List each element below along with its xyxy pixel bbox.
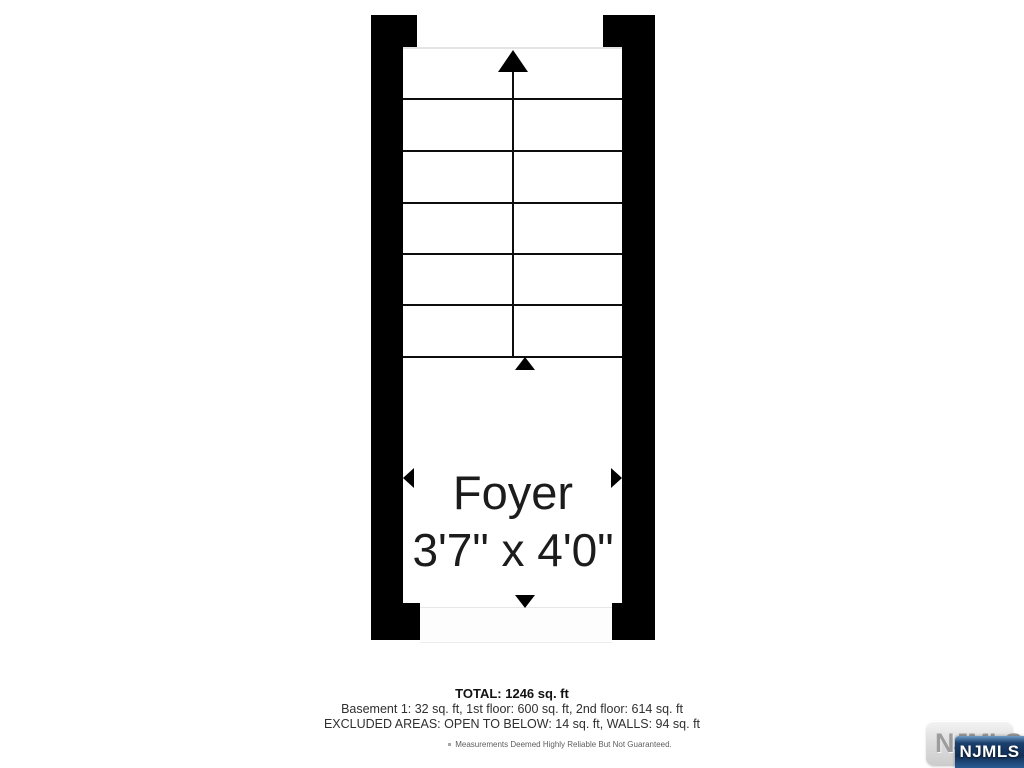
floor-breakdown-text: Basement 1: 32 sq. ft, 1st floor: 600 sq…: [0, 702, 1024, 716]
wall-stub-top-right: [603, 15, 655, 49]
disclaimer-label: Measurements Deemed Highly Reliable But …: [455, 740, 672, 749]
dimension-arrow-down-icon: [515, 595, 535, 608]
wall-stub-top-left: [371, 15, 417, 49]
disclaimer-mark-icon: [448, 743, 451, 746]
disclaimer-text: Measurements Deemed Highly Reliable But …: [96, 740, 1024, 749]
dimension-arrow-up-icon: [515, 357, 535, 370]
total-area-text: TOTAL: 1246 sq. ft: [0, 686, 1024, 701]
entry-opening-shadow: [420, 642, 612, 643]
stair-direction-line: [512, 70, 514, 358]
room-dimensions-label: 3'7" x 4'0": [359, 523, 667, 578]
entry-opening: [420, 607, 612, 641]
floor-plan-page: Foyer 3'7" x 4'0" TOTAL: 1246 sq. ft Bas…: [0, 0, 1024, 768]
njmls-logo-text: NJMLS: [955, 736, 1024, 768]
top-opening-line: [403, 47, 622, 49]
floor-plan: Foyer 3'7" x 4'0": [371, 15, 655, 640]
room-name-label: Foyer: [371, 465, 655, 521]
stairs-up-arrow-icon: [498, 50, 528, 72]
njmls-logo: NJMLS: [955, 736, 1024, 768]
wall-block-bottom-left: [371, 603, 420, 640]
wall-block-bottom-right: [612, 603, 655, 640]
excluded-areas-text: EXCLUDED AREAS: OPEN TO BELOW: 14 sq. ft…: [0, 717, 1024, 731]
